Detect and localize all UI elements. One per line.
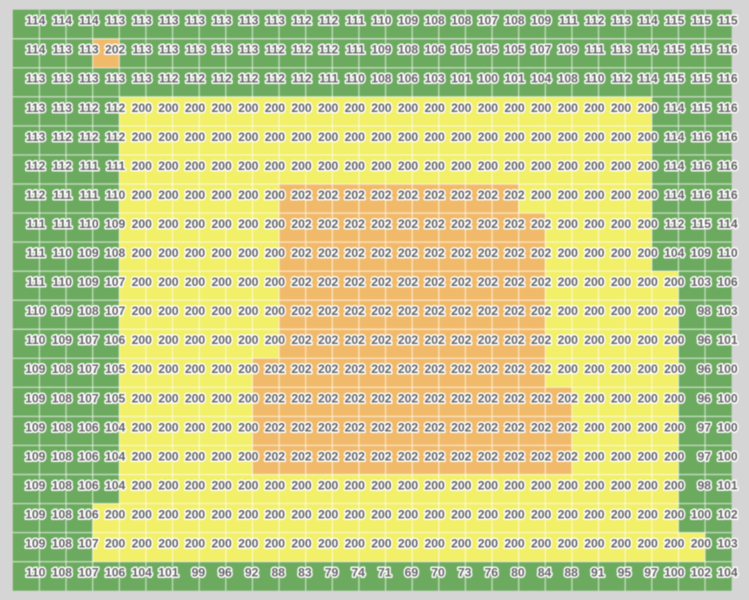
svg-text:109108106104200200200200200202: 1091081061042002002002002002022022022022… bbox=[25, 420, 738, 434]
svg-text:112111111110200200200200200200: 1121111111102002002002002002002022022022… bbox=[26, 188, 738, 202]
svg-text:110109107106200200200200200200: 1101091071062002002002002002002022022022… bbox=[26, 333, 738, 347]
svg-text:109108107200200200200200200200: 1091081072002002002002002002002002002002… bbox=[25, 537, 738, 551]
svg-text:109108107105200200200200200202: 1091081071052002002002002002022022022022… bbox=[25, 362, 738, 376]
svg-text:113112112112200200200200200200: 1131121121122002002002002002002002002002… bbox=[26, 130, 738, 144]
svg-text:111111110109200200200200200200: 1111111101092002002002002002002022022022… bbox=[26, 217, 737, 231]
svg-text:109108106200200200200200200200: 1091081062002002002002002002002002002002… bbox=[25, 507, 738, 521]
svg-text:109108107105200200200200200202: 1091081071052002002002002002022022022022… bbox=[25, 391, 738, 405]
svg-text:113113112112200200200200200200: 1131131121122002002002002002002002002002… bbox=[26, 101, 738, 115]
svg-text:109108106104200200200200200202: 1091081061042002002002002002022022022022… bbox=[25, 449, 738, 463]
svg-text:114113113202113113113113113112: 1141131132021131131131131131121121121111… bbox=[26, 43, 738, 57]
svg-text:113113113113113112112112112112: 1131131131131131121121121121121121111101… bbox=[26, 72, 738, 86]
svg-text:111110109107200200200200200200: 1111101091072002002002002002002022022022… bbox=[26, 275, 737, 289]
svg-text:110109108107200200200200200200: 1101091081072002002002002002002022022022… bbox=[26, 304, 738, 318]
svg-text:110108107106104101999692888379: 1101081071061041019996928883797471697073… bbox=[26, 566, 738, 580]
svg-text:114114114113113113113113113113: 1141141141131131131131131131131121121111… bbox=[26, 14, 738, 28]
svg-text:112112111111200200200200200200: 1121121111112002002002002002002002002002… bbox=[26, 159, 738, 173]
svg-text:111110109108200200200200200200: 1111101091082002002002002002002022022022… bbox=[26, 246, 737, 260]
svg-text:109108106104200200200200200200: 1091081061042002002002002002002002002002… bbox=[25, 478, 738, 492]
